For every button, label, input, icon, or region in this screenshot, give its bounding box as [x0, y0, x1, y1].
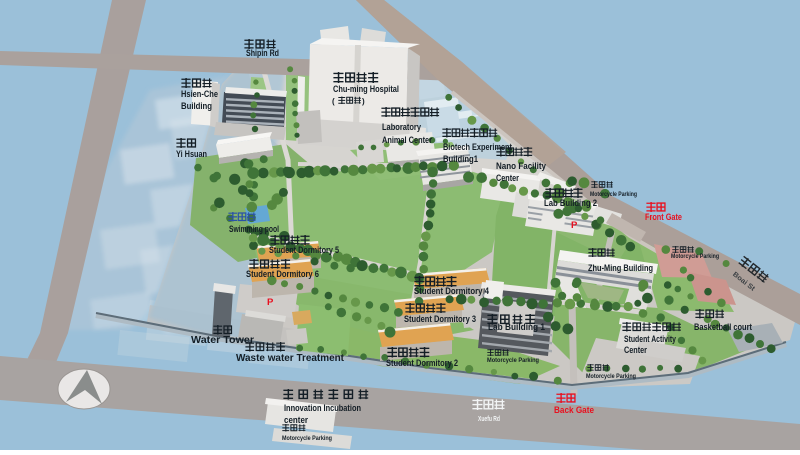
- svg-text:Innovation Incubation: Innovation Incubation: [284, 403, 361, 413]
- svg-text:Student Dormitory 6: Student Dormitory 6: [246, 269, 319, 279]
- svg-text:Student Activity: Student Activity: [624, 334, 676, 344]
- svg-text:Animal Center: Animal Center: [382, 135, 432, 145]
- svg-text:Building: Building: [181, 101, 212, 111]
- svg-text:Yi Hsuan: Yi Hsuan: [176, 149, 207, 159]
- svg-text:Motorcycle Parking: Motorcycle Parking: [282, 436, 332, 442]
- svg-text:Swimming pool: Swimming pool: [229, 224, 279, 234]
- svg-text:Water Tower: Water Tower: [191, 334, 254, 346]
- svg-text:Student Dormitory 2: Student Dormitory 2: [386, 358, 458, 369]
- svg-text:Lab Building 1: Lab Building 1: [488, 322, 545, 332]
- svg-text:(: (: [332, 97, 335, 106]
- svg-text:): ): [362, 97, 365, 106]
- svg-text:Motorcycle Parking: Motorcycle Parking: [586, 374, 636, 380]
- svg-text:Hsien-Che: Hsien-Che: [181, 89, 218, 99]
- svg-text:Motorcycle Parking: Motorcycle Parking: [671, 254, 719, 260]
- svg-text:Shipin Rd: Shipin Rd: [246, 48, 279, 58]
- svg-text:Biotech Experiment: Biotech Experiment: [443, 142, 512, 152]
- svg-text:Motorcycle Parking: Motorcycle Parking: [487, 358, 539, 364]
- svg-text:Center: Center: [496, 173, 519, 183]
- svg-text:Nano Facility: Nano Facility: [496, 161, 546, 171]
- svg-text:Chu-ming Hospital: Chu-ming Hospital: [333, 84, 399, 94]
- svg-text:Front Gate: Front Gate: [645, 212, 682, 222]
- svg-text:Center: Center: [624, 345, 647, 355]
- svg-text:P: P: [571, 220, 578, 231]
- svg-text:Lab Building 2: Lab Building 2: [544, 198, 597, 208]
- svg-text:Student Dormitory 4: Student Dormitory 4: [414, 286, 489, 296]
- svg-text:Waste water Treatment: Waste water Treatment: [236, 353, 345, 364]
- svg-text:Building1: Building1: [443, 154, 478, 164]
- svg-text:Student Dormitory 3: Student Dormitory 3: [404, 314, 476, 324]
- svg-text:center: center: [284, 415, 308, 425]
- svg-text:Zhu-Ming Building: Zhu-Ming Building: [588, 263, 653, 273]
- svg-text:Motorcycle Parking: Motorcycle Parking: [590, 192, 637, 198]
- svg-text:Student Dormitory 5: Student Dormitory 5: [269, 245, 339, 255]
- svg-text:Basketball court: Basketball court: [694, 322, 752, 332]
- svg-text:P: P: [267, 297, 274, 308]
- svg-text:Xuefu Rd: Xuefu Rd: [478, 416, 500, 423]
- svg-text:Laboratory: Laboratory: [382, 122, 421, 132]
- svg-text:Back Gate: Back Gate: [554, 405, 594, 415]
